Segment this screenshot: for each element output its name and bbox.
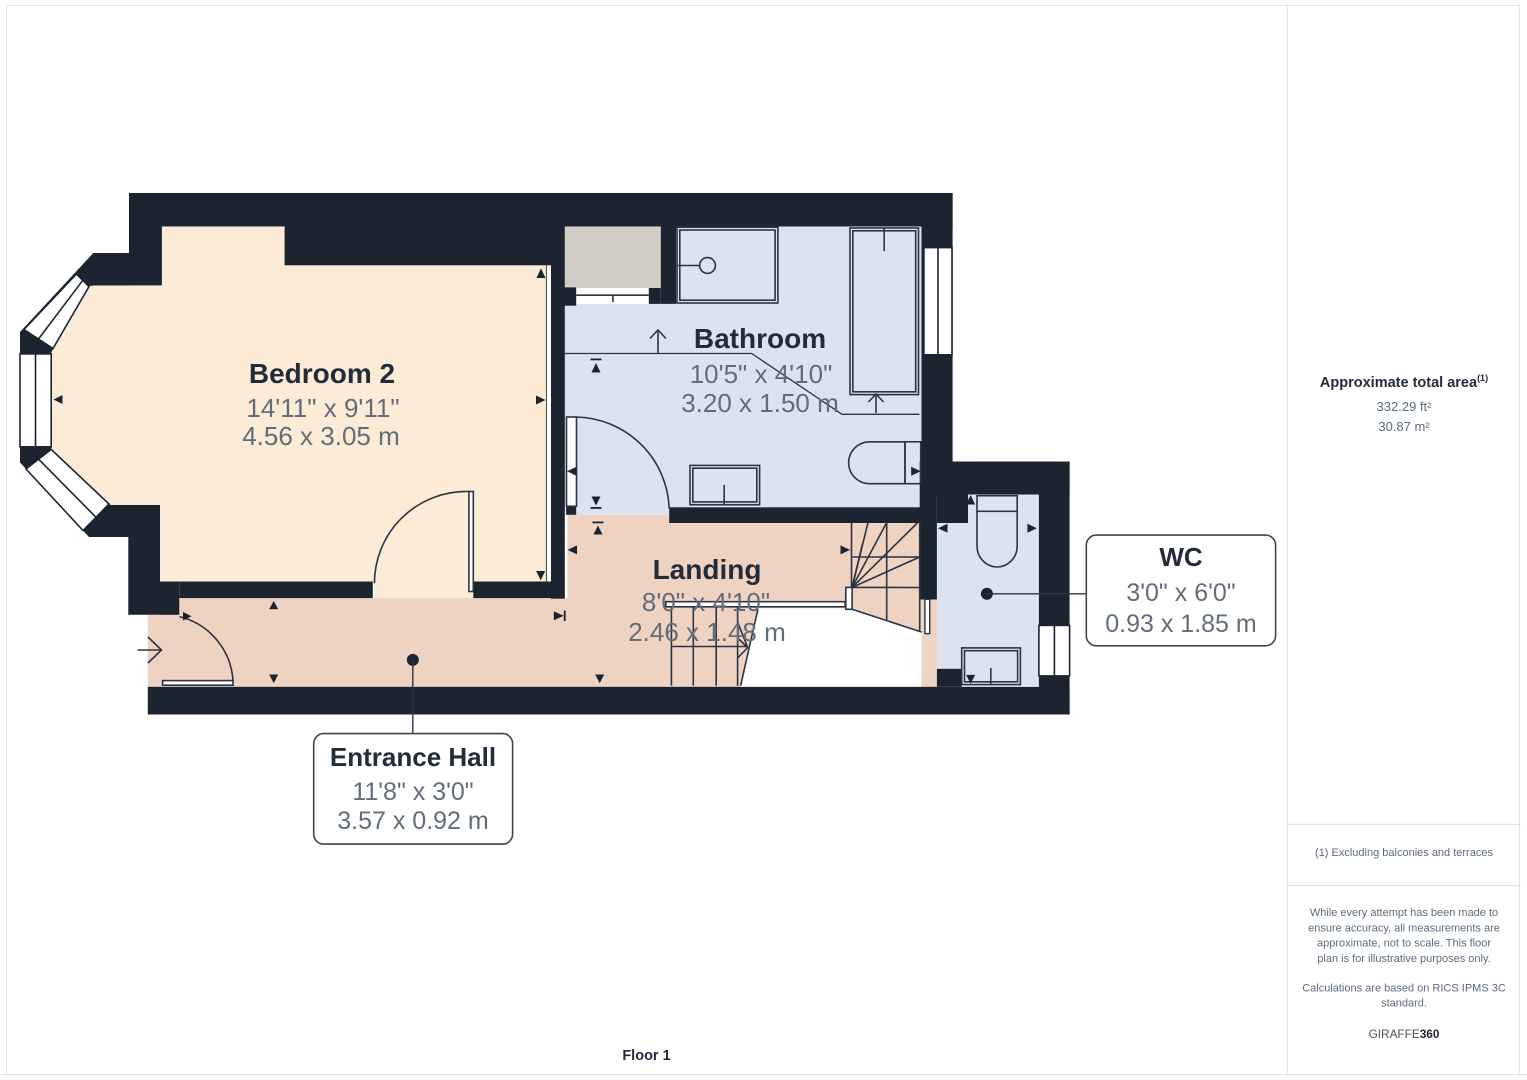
svg-text:4.56 x 3.05 m: 4.56 x 3.05 m [242, 421, 400, 451]
svg-text:14'11" x 9'11": 14'11" x 9'11" [246, 393, 399, 423]
svg-text:0.93 x 1.85 m: 0.93 x 1.85 m [1105, 610, 1256, 638]
svg-text:ensure accuracy, all measureme: ensure accuracy, all measurements are [1308, 922, 1500, 934]
svg-text:Bedroom 2: Bedroom 2 [249, 358, 395, 389]
svg-text:Landing: Landing [653, 554, 762, 585]
svg-text:approximate, not to scale. Thi: approximate, not to scale. This floor [1317, 938, 1491, 950]
svg-text:standard.: standard. [1381, 998, 1427, 1010]
svg-text:While every attempt has been m: While every attempt has been made to [1310, 907, 1498, 919]
svg-text:3.57 x 0.92 m: 3.57 x 0.92 m [337, 807, 488, 835]
svg-text:2.46 x 1.48 m: 2.46 x 1.48 m [628, 617, 786, 647]
svg-text:Floor 1: Floor 1 [622, 1048, 670, 1064]
svg-text:Bathroom: Bathroom [694, 323, 826, 354]
svg-text:Approximate total area(1): Approximate total area(1) [1320, 373, 1488, 391]
svg-text:3'0" x 6'0": 3'0" x 6'0" [1126, 579, 1235, 607]
svg-text:3.20 x 1.50 m: 3.20 x 1.50 m [681, 388, 839, 418]
svg-text:Calculations are based on RICS: Calculations are based on RICS IPMS 3C [1302, 982, 1506, 994]
svg-text:Entrance Hall: Entrance Hall [330, 742, 496, 772]
svg-text:plan is for illustrative purpo: plan is for illustrative purposes only. [1317, 953, 1490, 965]
svg-text:30.87 m²: 30.87 m² [1378, 419, 1430, 434]
svg-text:WC: WC [1159, 542, 1203, 572]
svg-text:(1) Excluding balconies and te: (1) Excluding balconies and terraces [1315, 847, 1493, 859]
svg-text:8'0" x 4'10": 8'0" x 4'10" [642, 587, 770, 617]
svg-text:11'8" x 3'0": 11'8" x 3'0" [352, 778, 473, 806]
svg-text:GIRAFFE360: GIRAFFE360 [1369, 1027, 1440, 1041]
svg-text:332.29 ft²: 332.29 ft² [1377, 399, 1433, 414]
svg-text:10'5" x 4'10": 10'5" x 4'10" [690, 359, 833, 389]
